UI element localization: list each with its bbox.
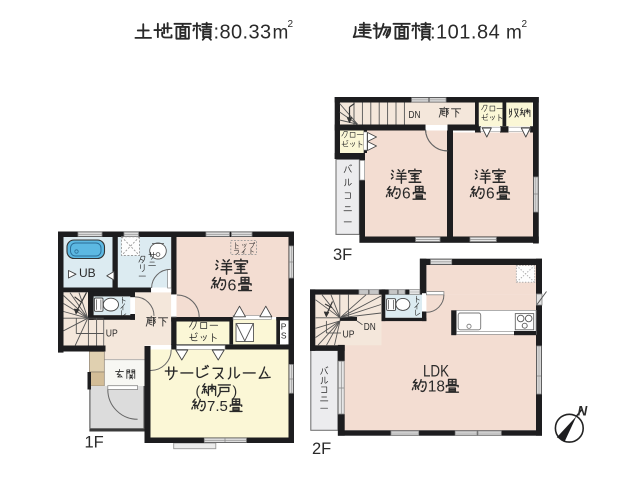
svg-text:6: 6 [228,278,237,295]
svg-text:18: 18 [428,379,445,396]
svg-text:1F: 1F [85,434,104,452]
svg-text:2: 2 [288,19,294,30]
svg-text:DN: DN [409,109,421,121]
svg-text::80.33: :80.33 [214,22,272,44]
svg-text:N: N [578,404,588,419]
svg-text::101.84: :101.84 [430,22,500,44]
svg-text:6: 6 [402,186,411,203]
svg-text:7.5: 7.5 [207,398,228,415]
svg-text:S: S [281,331,287,341]
svg-text:): ) [233,383,238,399]
svg-text:UB: UB [79,266,96,280]
svg-text:UP: UP [343,328,355,340]
svg-text:DN: DN [364,321,376,333]
svg-text:2: 2 [522,19,528,30]
svg-text:6: 6 [486,186,495,203]
svg-text:(: ( [196,383,201,399]
svg-text:2F: 2F [312,440,331,458]
svg-text:3F: 3F [333,246,352,264]
svg-text:UP: UP [106,328,118,340]
svg-text:m: m [273,23,289,44]
svg-text:m: m [506,23,522,44]
